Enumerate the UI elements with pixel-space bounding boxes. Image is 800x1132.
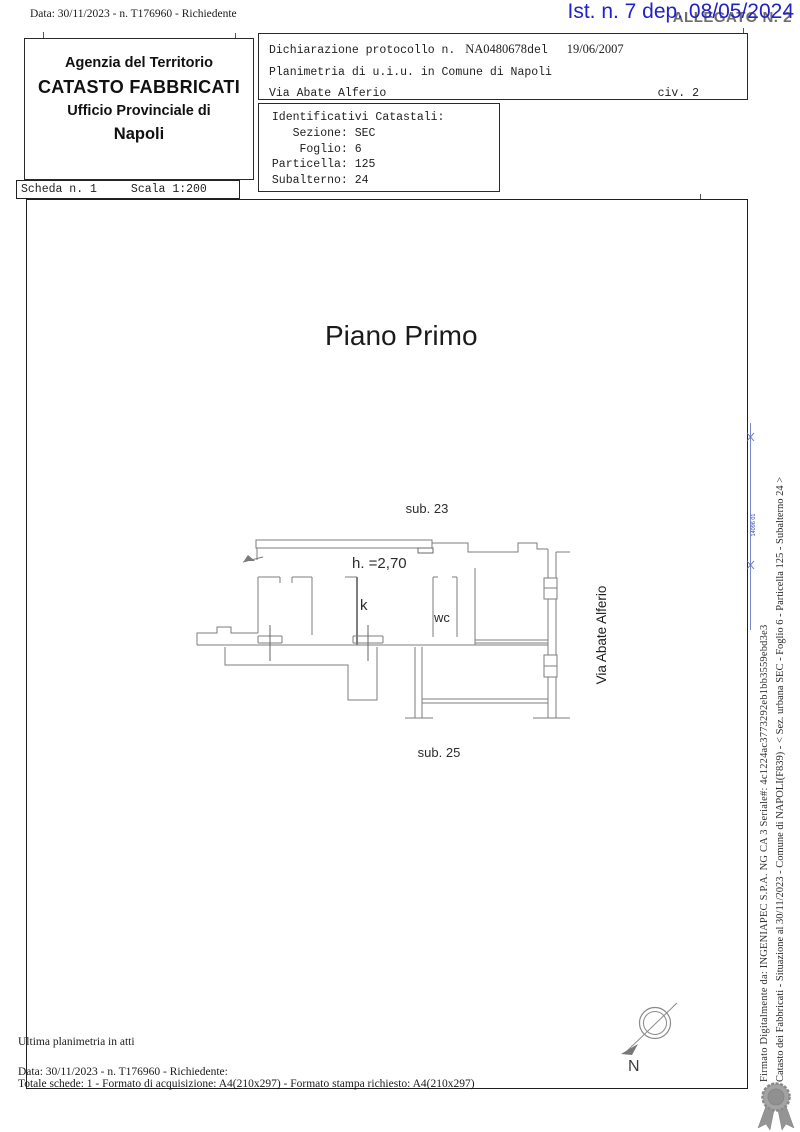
declaration-box: Dichiarazione protocollo n. NA0480678del… xyxy=(258,33,748,100)
agency-name: Agenzia del Territorio xyxy=(65,52,213,75)
protocol-number: NA0480678 xyxy=(465,42,527,56)
scheda-number: Scheda n. 1 xyxy=(21,183,97,196)
protocol-del: del xyxy=(527,44,548,57)
compass-icon: N xyxy=(610,995,695,1080)
height-label: h. =2,70 xyxy=(352,555,407,572)
floor-title: Piano Primo xyxy=(325,320,478,352)
signature-side-note: Firmato Digitalmente da: INGENIAPEC S.P.… xyxy=(759,625,770,1082)
footer-ultima-note: Ultima planimetria in atti xyxy=(18,1036,135,1048)
cadastral-identifiers-box: Identificativi Catastali: Sezione: SEC F… xyxy=(258,103,500,192)
top-request-note: Data: 30/11/2023 - n. T176960 - Richiede… xyxy=(30,8,382,20)
entrance-arrow-icon xyxy=(243,555,263,562)
north-label: N xyxy=(628,1058,640,1075)
wc-label: wc xyxy=(433,610,450,625)
office-header-box: Agenzia del Territorio CATASTO FABBRICAT… xyxy=(24,38,254,180)
office-subtitle: Ufficio Provinciale di xyxy=(67,100,210,122)
scheda-scala-box: Scheda n. 1 Scala 1:200 xyxy=(16,180,240,199)
street-name: Via Abate Alferio xyxy=(269,83,386,105)
signature-ruler: 14096 01 xyxy=(742,415,760,640)
office-city: Napoli xyxy=(114,122,164,146)
seal-ribbon-icon xyxy=(752,1080,800,1132)
cadastral-document-page: Data: 30/11/2023 - n. T176960 - Richiede… xyxy=(0,0,800,1132)
floor-plan: sub. 23 h. =2,70 k wc sub. 25 Via Abate … xyxy=(185,495,625,765)
sub23-label: sub. 23 xyxy=(406,501,449,516)
civic-number: civ. 2 xyxy=(658,83,699,105)
deposit-stamp-text: Ist. n. 7 dep. 08/05/2024 xyxy=(567,0,794,24)
scala-value: Scala 1:200 xyxy=(131,183,207,196)
footer-schede-note: Totale schede: 1 - Formato di acquisizio… xyxy=(18,1078,475,1090)
planimetria-line: Planimetria di u.i.u. in Comune di Napol… xyxy=(269,62,737,84)
protocol-label: Dichiarazione protocollo n. xyxy=(269,44,455,57)
cadastral-identifiers: Identificativi Catastali: Sezione: SEC F… xyxy=(259,104,499,189)
ruler-mark-text: 14096 01 xyxy=(751,514,757,537)
kitchen-label: k xyxy=(360,597,368,614)
sub25-label: sub. 25 xyxy=(418,745,461,760)
footer-data-note: Data: 30/11/2023 - n. T176960 - Richiede… xyxy=(18,1066,228,1078)
protocol-line: Dichiarazione protocollo n. NA0480678del… xyxy=(269,39,737,62)
street-side-label: Via Abate Alferio xyxy=(594,586,609,685)
situazione-side-note: Catasto dei Fabbricati - Situazione al 3… xyxy=(775,477,786,1082)
catasto-title: CATASTO FABBRICATI xyxy=(38,75,240,100)
address-line: Via Abate Alferio civ. 2 xyxy=(269,83,737,105)
protocol-date: 19/06/2007 xyxy=(567,42,624,56)
